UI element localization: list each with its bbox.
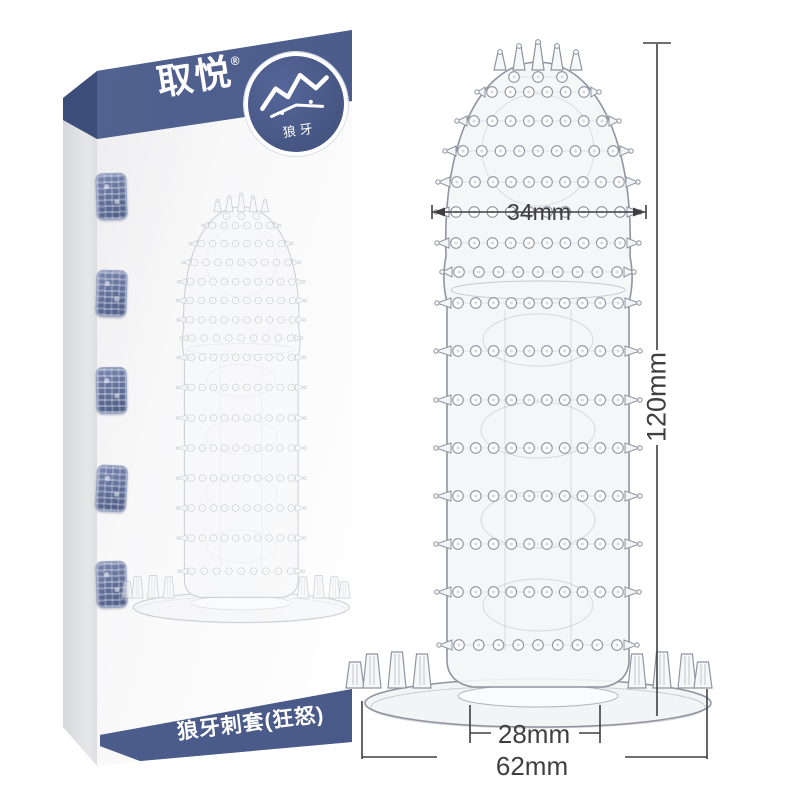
seal-stamp-icon (95, 269, 128, 317)
seal-stamp-icon (95, 172, 128, 220)
base-width-label: 62mm (472, 753, 592, 779)
trademark-symbol: ® (230, 53, 241, 68)
box-side-panel (63, 71, 97, 766)
seal-stamp-icon (95, 464, 128, 513)
brand-text: 取悦 (154, 51, 235, 103)
total-length-label: 120mm (644, 352, 671, 442)
inner-width-label: 28mm (474, 721, 594, 747)
tip-width-label: 34mm (489, 201, 589, 224)
seal-stamp-icon (95, 560, 128, 608)
seal-stamp-icon (96, 367, 128, 415)
scene: 取悦® 狼牙 狼牙刺套(狂怒) (0, 0, 800, 800)
